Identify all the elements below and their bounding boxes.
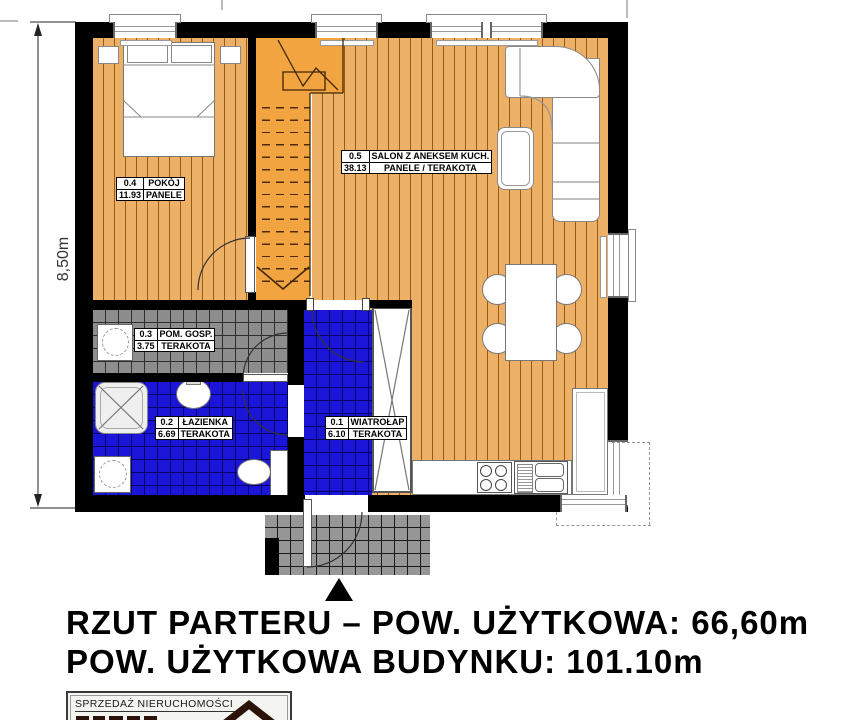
room-area: 38.13 (342, 162, 370, 174)
logo-letter-top (109, 716, 123, 720)
room-name: ŁAZIENKA (178, 417, 232, 429)
entrance-porch (265, 515, 430, 575)
plan-title-line2: POW. UŻYTKOWA BUDYNKU: 101.10m (66, 643, 704, 681)
pillow-right (171, 45, 212, 63)
entrance-marker (325, 578, 353, 601)
dimension-arrow-top (34, 23, 42, 36)
toilet (237, 459, 271, 485)
door-leaf-utility (243, 374, 288, 382)
kitchen-counter-return-inner (576, 392, 605, 492)
wall-hall-bottom (93, 300, 312, 310)
room-label-bedroom: 0.4 POKÓJ 11.93 PANELE (116, 177, 185, 201)
room-area: 6.69 (156, 428, 179, 440)
window-stairs (315, 22, 378, 38)
bathroom-door-leaf (270, 450, 288, 497)
window-mullion (481, 22, 492, 38)
dimension-label: 8,50m (55, 219, 73, 299)
dining-table (505, 264, 557, 361)
dimension-arrow-bottom (34, 494, 42, 507)
stove-burner (480, 465, 492, 477)
stairs-landing (310, 38, 343, 93)
sink-bowl (535, 478, 564, 492)
wall-utility-right (288, 310, 304, 382)
door-post (362, 298, 370, 311)
radiator (320, 40, 374, 46)
floor-plan-canvas: 0.4 POKÓJ 11.93 PANELE 0.5 SALON Z ANEKS… (0, 0, 844, 720)
window-terrace-right (608, 233, 628, 298)
door-opening-entrance (305, 495, 368, 512)
wall-left (75, 22, 93, 512)
radiator (600, 236, 607, 298)
logo-letter-top (76, 716, 89, 720)
room-floor: PANELE (144, 189, 185, 201)
radiator (436, 40, 538, 46)
room-id: 0.2 (156, 417, 179, 429)
sink-bowl (535, 463, 564, 477)
stairs-treads (256, 96, 310, 284)
porch-step (265, 538, 279, 575)
room-area: 6.10 (326, 428, 349, 440)
window-sill (628, 229, 636, 302)
stove-burner (495, 465, 507, 477)
logo-letter-top (93, 716, 105, 720)
wall-vestibule-top (368, 300, 412, 308)
terrace-outline (556, 512, 651, 526)
plan-title-line1: RZUT PARTERU – POW. UŻYTKOWA: 66,60m (66, 604, 809, 642)
room-label-vestibule: 0.1 WIATROŁAP 6.10 TERAKOTA (325, 416, 407, 440)
room-area: 3.75 (135, 340, 158, 352)
room-id: 0.4 (117, 178, 144, 190)
room-floor: TERAKOTA (348, 428, 407, 440)
door-opening-bathroom (288, 385, 304, 437)
room-label-utility: 0.3 POM. GOSP. 3.75 TERAKOTA (134, 328, 215, 352)
coffee-table-inner (501, 131, 530, 186)
window-bedroom (113, 22, 177, 38)
room-label-living: 0.5 SALON Z ANEKSEM KUCH. 38.13 PANELE /… (341, 150, 492, 174)
stove-burner (480, 479, 492, 491)
logo-caption: SPRZEDAŻ NIERUCHOMOŚCI (75, 698, 240, 712)
room-name: POM. GOSP. (157, 329, 215, 341)
room-id: 0.1 (326, 417, 349, 429)
door-leaf-entrance (303, 499, 312, 567)
room-label-bathroom: 0.2 ŁAZIENKA 6.69 TERAKOTA (155, 416, 233, 440)
floor-vestibule (304, 310, 372, 512)
room-floor: TERAKOTA (157, 340, 215, 352)
stove-burner (495, 479, 507, 491)
logo-letter-top (144, 716, 157, 720)
room-name: POKÓJ (144, 178, 185, 190)
washing-machine-drum (99, 460, 127, 488)
wardrobe (372, 307, 412, 493)
nightstand-right (220, 46, 241, 64)
room-floor: PANELE / TERAKOTA (369, 162, 492, 174)
room-id: 0.5 (342, 151, 370, 163)
shower-inner (100, 387, 143, 429)
pillow-left (127, 45, 168, 63)
sink-drainer (517, 464, 533, 493)
utility-boiler-drum (102, 328, 129, 356)
room-name: WIATROŁAP (348, 417, 407, 429)
radiator (120, 40, 172, 46)
room-area: 11.93 (117, 189, 144, 201)
agency-logo: SPRZEDAŻ NIERUCHOMOŚCI (66, 691, 292, 720)
door-opening-vestibule-salon (310, 300, 368, 310)
room-name: SALON Z ANEKSEM KUCH. (369, 151, 492, 163)
room-floor: TERAKOTA (178, 428, 232, 440)
logo-letter-top (127, 716, 140, 720)
room-id: 0.3 (135, 329, 158, 341)
door-leaf-bedroom (245, 236, 255, 293)
nightstand-left (98, 46, 119, 64)
door-post (306, 298, 314, 311)
